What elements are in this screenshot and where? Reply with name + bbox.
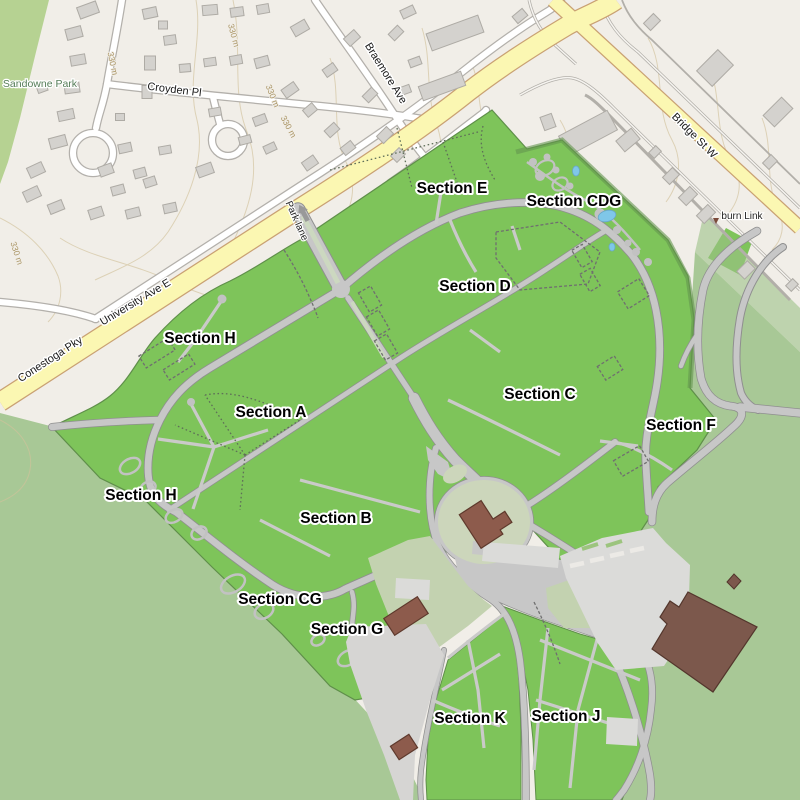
- svg-text:Section H: Section H: [105, 487, 176, 504]
- svg-text:Section A: Section A: [236, 404, 307, 421]
- svg-text:burn Link: burn Link: [721, 211, 763, 222]
- svg-text:Section K: Section K: [434, 710, 506, 727]
- svg-text:Section G: Section G: [311, 621, 383, 638]
- svg-text:Section H: Section H: [164, 330, 235, 347]
- svg-text:Section F: Section F: [646, 417, 716, 434]
- svg-text:Section B: Section B: [300, 510, 371, 527]
- svg-text:Section E: Section E: [417, 180, 488, 197]
- svg-text:Section D: Section D: [439, 278, 510, 295]
- svg-text:Sandowne Park: Sandowne Park: [3, 78, 78, 90]
- svg-text:Section J: Section J: [532, 708, 601, 725]
- svg-text:Section CG: Section CG: [238, 591, 322, 608]
- svg-text:Section C: Section C: [504, 386, 575, 403]
- svg-text:Section CDG: Section CDG: [527, 193, 622, 210]
